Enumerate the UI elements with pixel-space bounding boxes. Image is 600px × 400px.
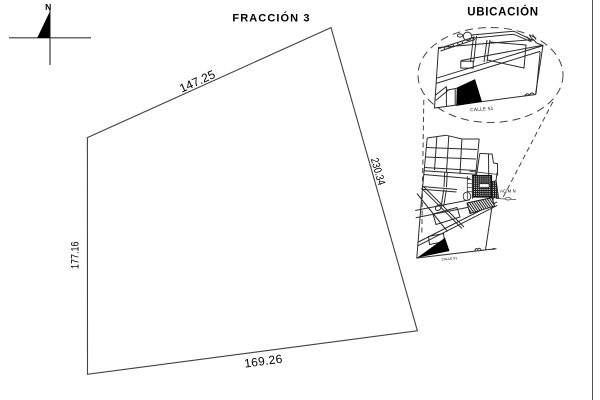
svg-text:UBICACIÓN: UBICACIÓN (467, 5, 538, 18)
svg-text:FRACCIÓN 3: FRACCIÓN 3 (232, 11, 310, 24)
svg-text:177.16: 177.16 (69, 242, 81, 269)
svg-text:N: N (45, 2, 51, 12)
svg-text:ACIM N: ACIM N (500, 189, 516, 194)
